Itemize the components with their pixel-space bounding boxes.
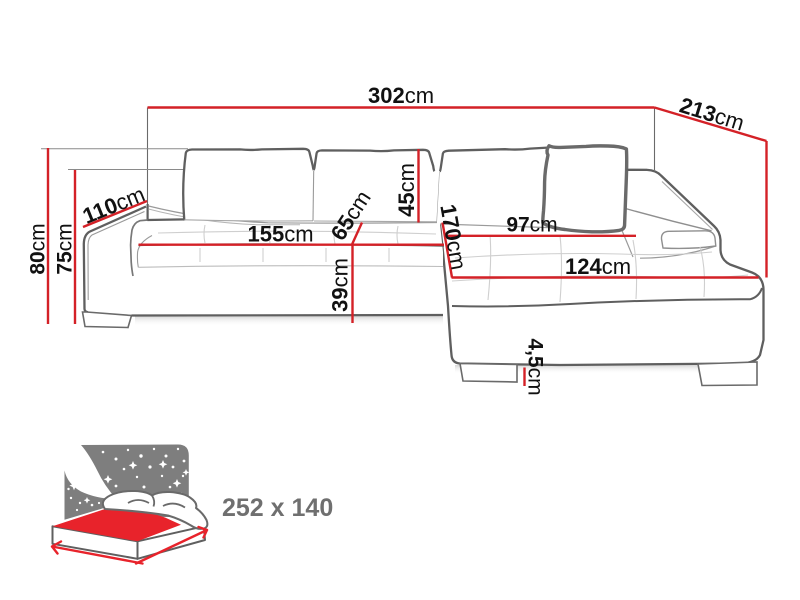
- svg-text:45cm: 45cm: [394, 163, 419, 217]
- svg-text:39cm: 39cm: [328, 258, 353, 312]
- svg-text:4,5cm: 4,5cm: [524, 338, 547, 395]
- svg-text:124cm: 124cm: [565, 254, 631, 279]
- svg-text:155cm: 155cm: [247, 222, 313, 247]
- svg-text:252 x 140: 252 x 140: [222, 494, 333, 522]
- svg-text:80cm: 80cm: [27, 223, 50, 274]
- svg-text:302cm: 302cm: [368, 83, 434, 108]
- svg-text:97cm: 97cm: [506, 214, 557, 237]
- svg-text:75cm: 75cm: [54, 223, 77, 274]
